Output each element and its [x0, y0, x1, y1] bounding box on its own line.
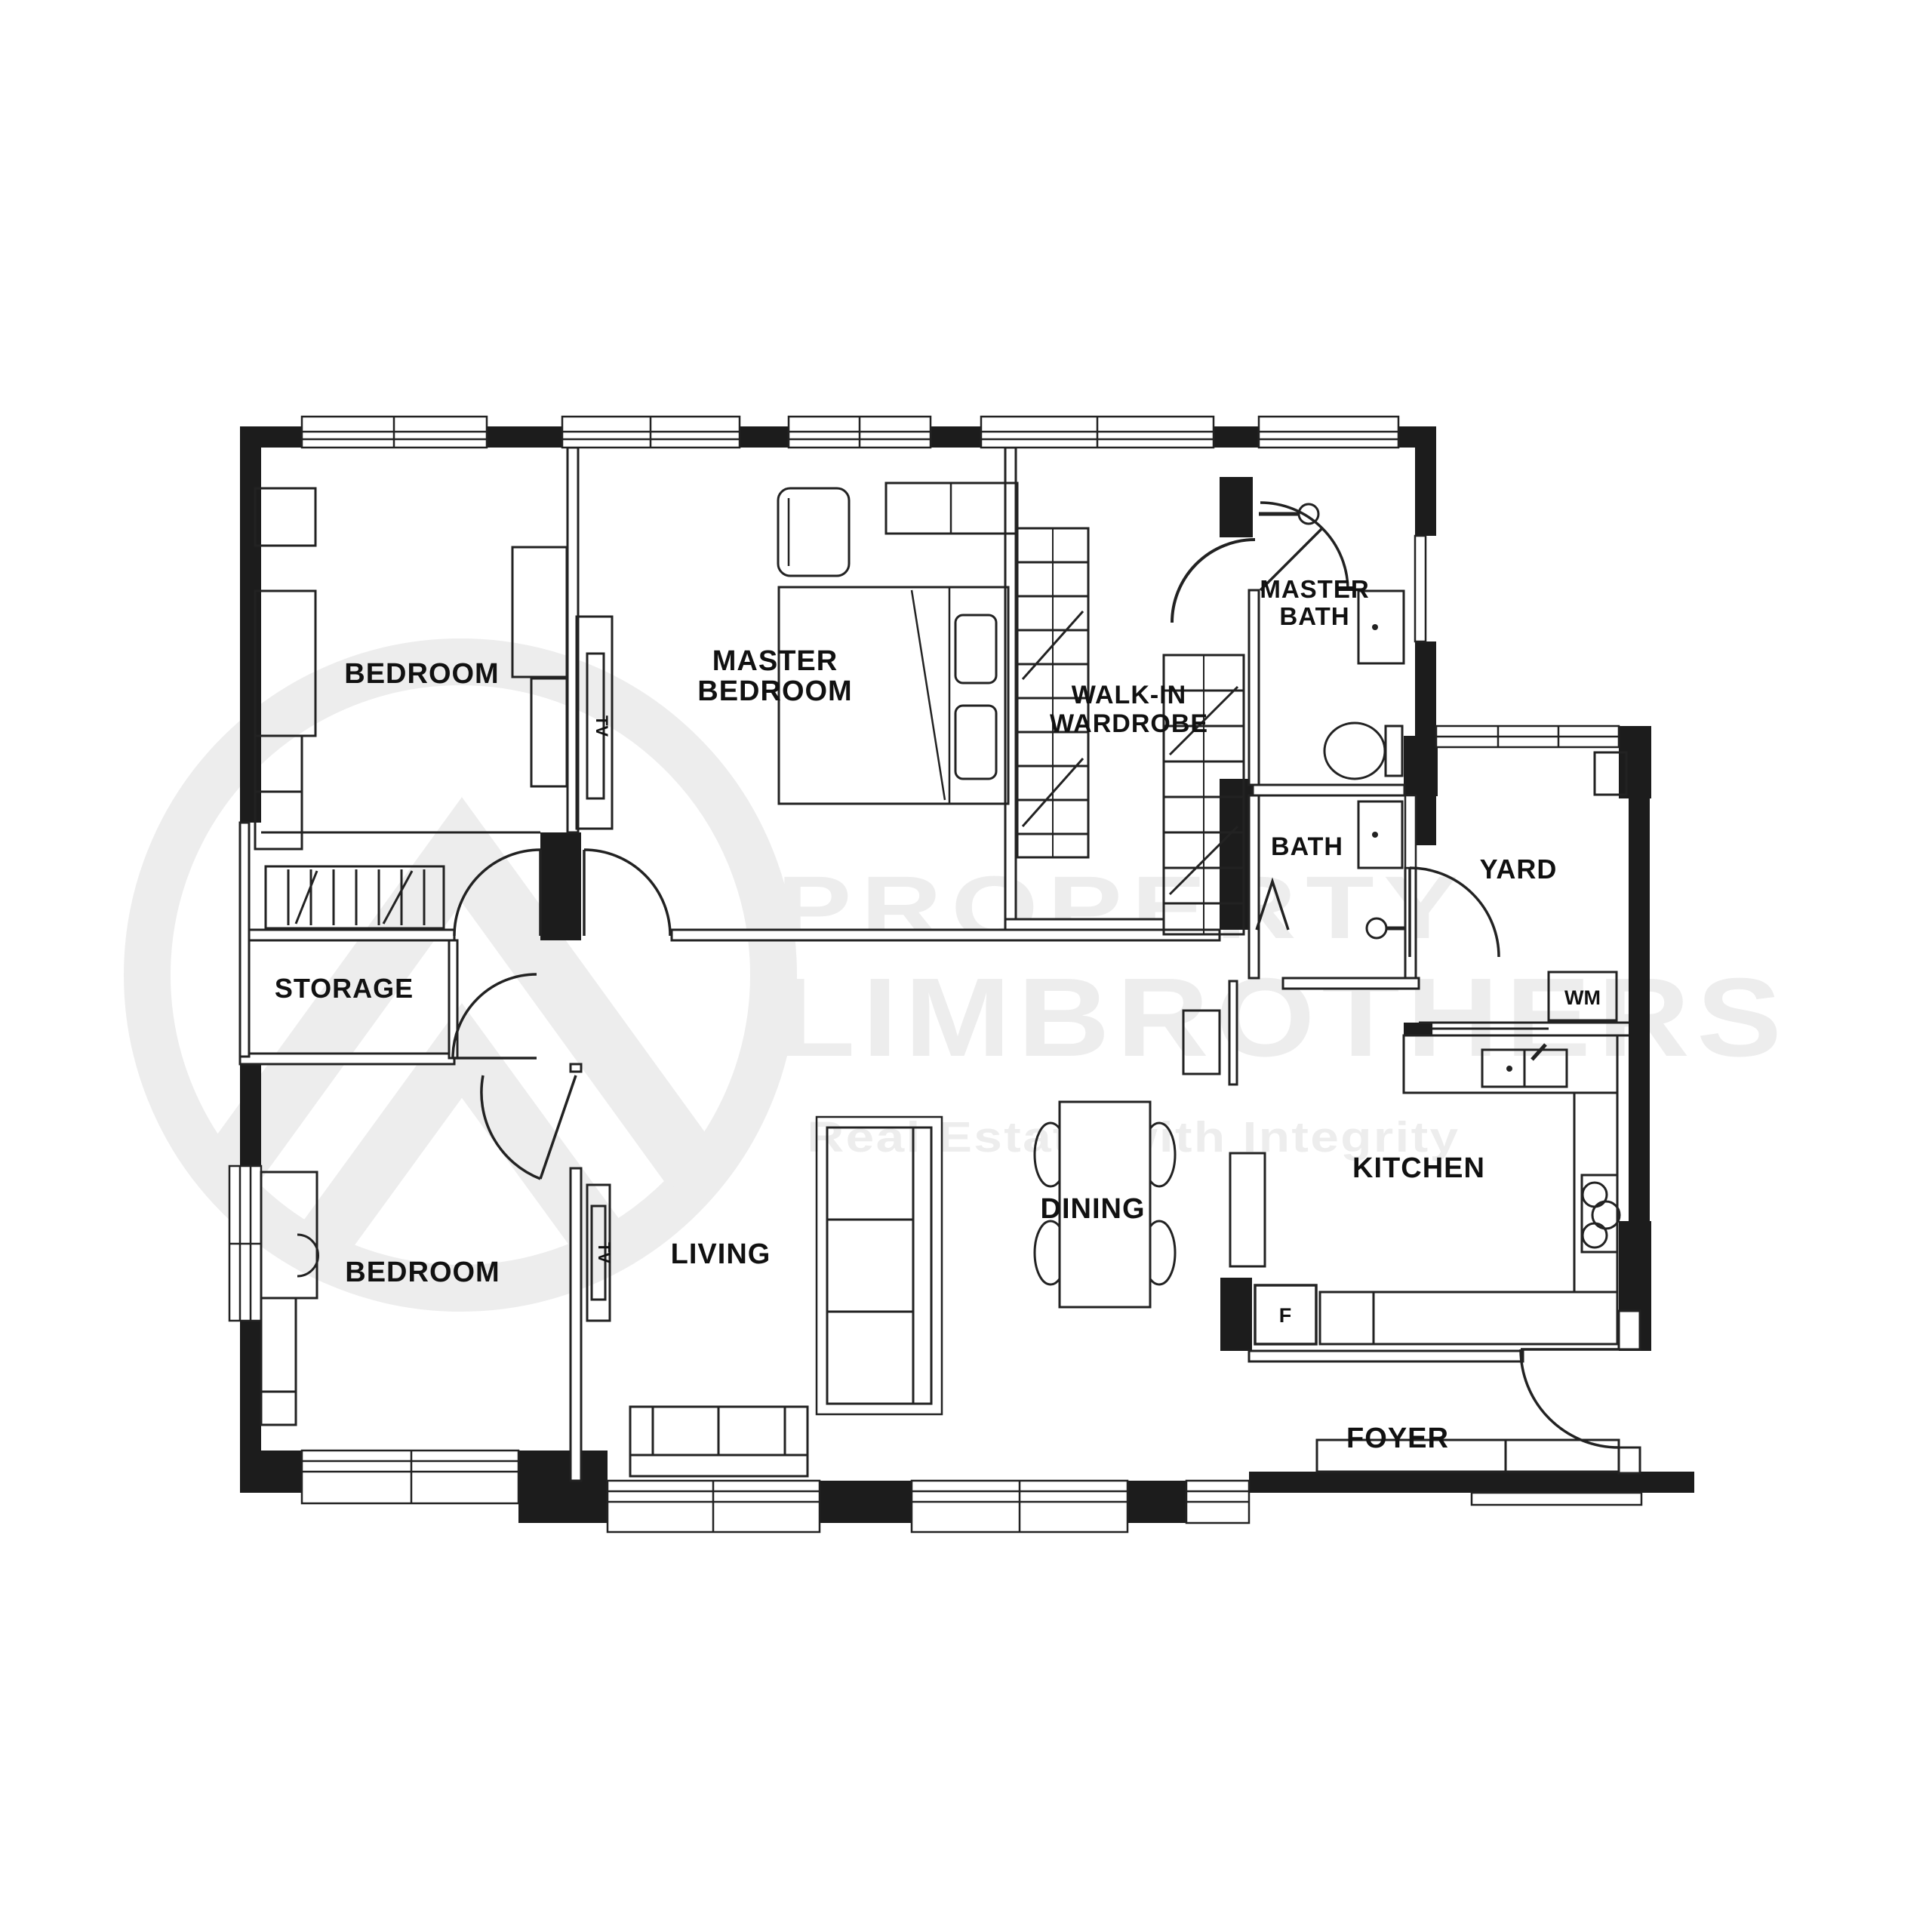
wardrobe-curved-wall: [1172, 540, 1255, 623]
floor-plan-canvas: PROPERTY LIMBROTHERS Real Estate with In…: [0, 0, 1932, 1932]
sofa-vertical: [817, 1117, 942, 1414]
label-fridge: F: [1279, 1304, 1292, 1327]
label-tv-master: TV: [592, 715, 611, 737]
label-living: LIVING: [671, 1238, 771, 1270]
label-storage: STORAGE: [275, 973, 414, 1004]
label-foyer: FOYER: [1346, 1423, 1449, 1454]
label-master-line2: BEDROOM: [697, 675, 852, 707]
label-washing-machine: WM: [1564, 986, 1601, 1009]
label-bedroom-top: BEDROOM: [344, 658, 499, 690]
label-kitchen: KITCHEN: [1352, 1152, 1485, 1184]
kitchen-east-counter: [1574, 1093, 1620, 1292]
label-walkin-line1: WALK-IN: [1072, 681, 1186, 709]
label-bedroom-bottom: BEDROOM: [345, 1257, 500, 1288]
master-door-arc: [584, 850, 670, 936]
entrance-door-arc: [1521, 1349, 1619, 1447]
label-bath: BATH: [1271, 832, 1343, 861]
label-masterbath-line2: BATH: [1279, 602, 1349, 630]
label-tv-living: TV: [595, 1242, 614, 1263]
label-dining: DINING: [1041, 1193, 1146, 1225]
label-walkin-line2: WARDROBE: [1050, 709, 1208, 738]
label-master-line1: MASTER: [712, 645, 838, 677]
master-bath-toilet: [1324, 723, 1402, 779]
kitchen-bottom-counter: [1320, 1292, 1617, 1344]
kitchen-island: [1230, 1153, 1265, 1266]
label-yard: YARD: [1480, 854, 1558, 884]
floor-plan-page: PROPERTY LIMBROTHERS Real Estate with In…: [0, 0, 1932, 1932]
master-armchair: [778, 488, 849, 576]
watermark-line1: PROPERTY: [777, 858, 1468, 958]
sofa-horizontal: [630, 1407, 808, 1476]
